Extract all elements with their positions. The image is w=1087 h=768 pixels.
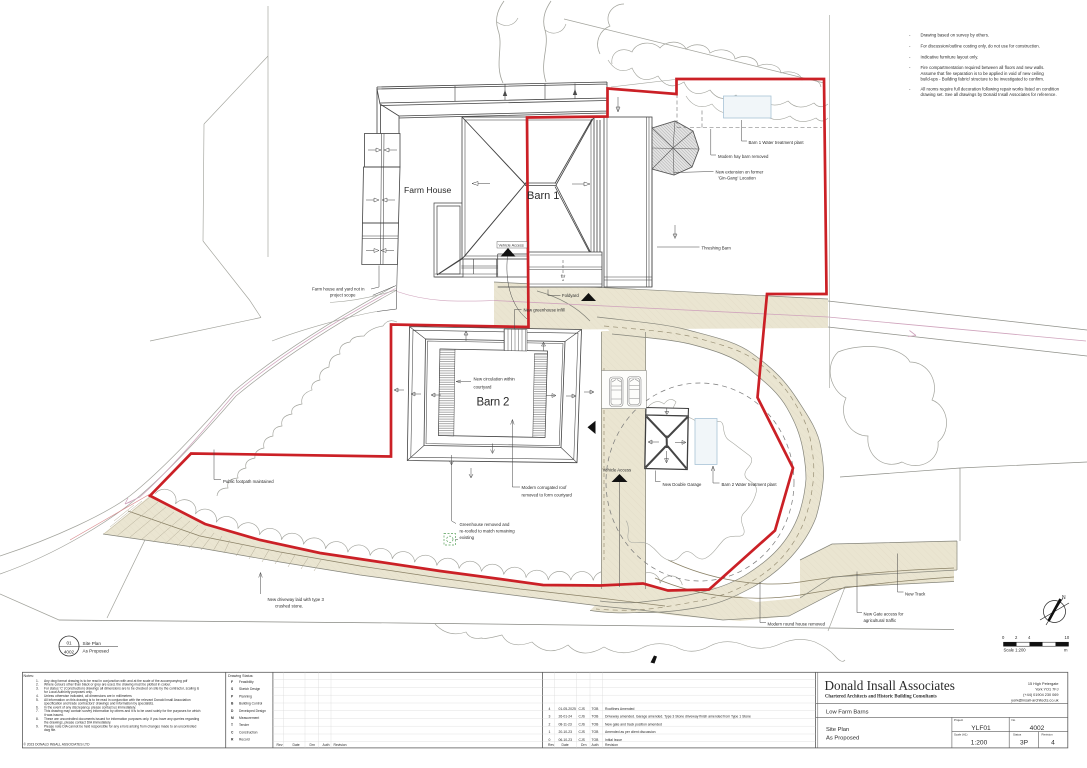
svg-text:Rev: Rev <box>277 743 283 747</box>
svg-text:existing: existing <box>460 535 475 540</box>
svg-text:Greenhouse removed and: Greenhouse removed and <box>460 522 511 527</box>
svg-text:1: 1 <box>549 730 551 734</box>
svg-text:3.: 3. <box>36 686 39 690</box>
svg-text:Fire compartmentation required: Fire compartmentation required between a… <box>921 65 1045 70</box>
svg-text:15 High Petergate: 15 High Petergate <box>1028 682 1059 686</box>
svg-text:Project: Project <box>954 718 963 722</box>
svg-text:Scale (A1): Scale (A1) <box>954 732 968 736</box>
svg-text:Amended as per client discussi: Amended as per client discussion <box>605 730 656 734</box>
svg-text:Date: Date <box>562 743 569 747</box>
svg-text:Drn: Drn <box>581 743 587 747</box>
svg-text:Status: Status <box>1013 732 1022 736</box>
svg-text:As Proposed: As Proposed <box>826 736 859 742</box>
svg-text:TOB: TOB <box>592 707 600 711</box>
svg-text:Barn 1: Barn 1 <box>527 190 559 202</box>
svg-text:8.: 8. <box>36 717 39 721</box>
svg-text:CJS: CJS <box>579 715 586 719</box>
svg-text:Foldyard: Foldyard <box>562 293 579 298</box>
svg-text:YLF01: YLF01 <box>971 725 991 732</box>
svg-text:For discussion/outline costing: For discussion/outline costing only, do … <box>921 44 1040 49</box>
svg-text:4: 4 <box>1051 740 1055 747</box>
svg-text:Donald Insall Associates: Donald Insall Associates <box>825 678 955 693</box>
svg-text:01: 01 <box>66 641 72 646</box>
svg-text:Feasibility: Feasibility <box>239 680 254 684</box>
svg-text:This drawing may contain surve: This drawing may contain survey informat… <box>44 709 201 713</box>
svg-text:CJS: CJS <box>579 730 586 734</box>
svg-text:Modern hay barn removed: Modern hay barn removed <box>718 154 769 159</box>
svg-text:F: F <box>231 680 233 684</box>
svg-text:2: 2 <box>549 722 551 726</box>
svg-text:removed to form courtyard: removed to form courtyard <box>522 493 573 498</box>
svg-text:courtyard: courtyard <box>474 385 493 390</box>
svg-text:New Double Garage: New Double Garage <box>663 482 703 487</box>
svg-text:Driveway amended. Garage amend: Driveway amended. Garage amended. Type 3… <box>605 715 751 719</box>
svg-text:Please note DIA cannot be held: Please note DIA cannot be held responsib… <box>44 724 196 728</box>
svg-text:Drawing Status:: Drawing Status: <box>228 674 253 678</box>
svg-text:0: 0 <box>549 738 551 742</box>
svg-text:dwg file.: dwg file. <box>44 728 56 732</box>
svg-text:06-10-23: 06-10-23 <box>559 738 573 742</box>
svg-text:T: T <box>231 723 233 727</box>
svg-text:Vehicle Access: Vehicle Access <box>499 244 524 248</box>
svg-text:10: 10 <box>1065 635 1070 640</box>
svg-text:08-11-23: 08-11-23 <box>559 722 572 726</box>
svg-text:Drn: Drn <box>310 743 316 747</box>
svg-text:Assume that fire separation is: Assume that fire separation is to be app… <box>921 71 1045 76</box>
svg-text:Modern corrugated roof: Modern corrugated roof <box>522 485 568 490</box>
svg-text:01-05-2025: 01-05-2025 <box>559 707 576 711</box>
svg-text:Record: Record <box>239 738 250 742</box>
svg-text:7.: 7. <box>36 709 39 713</box>
svg-text:'Gin-Gang' Location: 'Gin-Gang' Location <box>718 176 756 181</box>
svg-text:Tender: Tender <box>239 723 250 727</box>
svg-text:Barn 1 Water treatment plant: Barn 1 Water treatment plant <box>749 140 805 145</box>
svg-text:re-roofed to match remaining: re-roofed to match remaining <box>460 529 516 534</box>
svg-text:Revision: Revision <box>334 743 347 747</box>
svg-text:3: 3 <box>549 715 551 719</box>
svg-text:20-10-23: 20-10-23 <box>559 730 573 734</box>
svg-text:TOB: TOB <box>592 722 600 726</box>
svg-text:New driveway laid with type 3: New driveway laid with type 3 <box>268 597 325 602</box>
svg-text:Revision: Revision <box>605 743 618 747</box>
svg-text:New circulation within: New circulation within <box>474 377 516 382</box>
svg-text:N: N <box>1062 595 1066 601</box>
svg-text:3P: 3P <box>1020 740 1029 747</box>
svg-text:Low Farm Barns: Low Farm Barns <box>826 710 869 716</box>
svg-text:CJS: CJS <box>579 722 586 726</box>
svg-text:Indicative furniture layout on: Indicative furniture layout only. <box>921 55 979 60</box>
svg-text:Measurement: Measurement <box>239 716 259 720</box>
svg-text:Public footpath maintained: Public footpath maintained <box>223 479 274 484</box>
svg-text:CJS: CJS <box>579 707 586 711</box>
svg-text:project scope: project scope <box>330 293 356 298</box>
svg-text:Developed Design: Developed Design <box>239 709 266 713</box>
svg-text:Drawing based on survey by oth: Drawing based on survey by others. <box>921 33 990 38</box>
svg-text:All rooms require full decorat: All rooms require full decoration follow… <box>921 87 1060 92</box>
svg-text:Notes:: Notes: <box>24 674 34 678</box>
svg-text:Revision: Revision <box>1042 732 1053 736</box>
svg-text:Rev: Rev <box>548 743 554 747</box>
svg-text:New Gate access for: New Gate access for <box>864 612 904 617</box>
svg-text:Threshing Barn: Threshing Barn <box>702 246 732 251</box>
svg-text:york@insall-architects.co.uk: york@insall-architects.co.uk <box>1011 699 1058 703</box>
svg-text:Planning: Planning <box>239 694 252 698</box>
svg-text:(+44) 01904 230 069: (+44) 01904 230 069 <box>1023 693 1058 697</box>
svg-text:No: No <box>1012 718 1016 722</box>
svg-text:build-ups - Building fabric/ s: build-ups - Building fabric/ structure t… <box>921 76 1044 81</box>
svg-text:Building Control: Building Control <box>239 702 263 706</box>
svg-text:9.: 9. <box>36 724 39 728</box>
svg-text:Auth: Auth <box>323 743 330 747</box>
svg-text:New Track: New Track <box>905 592 926 597</box>
svg-text:York YO1 7FJ: York YO1 7FJ <box>1035 688 1059 692</box>
svg-text:drawing set. See all drawings: drawing set. See all drawings by Donald … <box>921 92 1057 97</box>
svg-text:New extension on former: New extension on former <box>716 170 764 175</box>
svg-text:Chartered Architects and Histo: Chartered Architects and Historic Buildi… <box>825 695 937 700</box>
svg-text:Initial Issue: Initial Issue <box>605 738 622 742</box>
svg-text:TOB: TOB <box>592 730 600 734</box>
svg-text:CJS: CJS <box>579 738 586 742</box>
svg-text:4002: 4002 <box>1030 725 1045 732</box>
svg-text:26-01-24: 26-01-24 <box>559 715 573 719</box>
svg-text:Modern round house removed: Modern round house removed <box>768 622 826 627</box>
svg-text:Vehicle Access: Vehicle Access <box>603 468 632 473</box>
svg-text:4002: 4002 <box>64 650 75 655</box>
svg-text:Rooflines Amended: Rooflines Amended <box>605 707 635 711</box>
svg-text:1:200: 1:200 <box>971 740 988 747</box>
svg-text:Barn 2: Barn 2 <box>477 397 510 409</box>
svg-text:Scale 1:200: Scale 1:200 <box>1004 648 1027 653</box>
svg-text:As Proposed: As Proposed <box>83 649 110 654</box>
svg-text:Construction: Construction <box>239 730 258 734</box>
svg-text:Site Plan: Site Plan <box>826 727 849 733</box>
svg-text:5.: 5. <box>36 698 39 702</box>
svg-text:Auth: Auth <box>592 743 599 747</box>
svg-text:New greenhouse infill: New greenhouse infill <box>524 308 565 313</box>
svg-text:Farm House: Farm House <box>404 185 451 195</box>
svg-text:TOB: TOB <box>592 715 600 719</box>
svg-text:Barn 2 Water treatment plant: Barn 2 Water treatment plant <box>722 482 778 487</box>
svg-text:M: M <box>231 716 234 720</box>
svg-text:TOB: TOB <box>592 738 600 742</box>
svg-text:agricultural traffic: agricultural traffic <box>864 618 897 623</box>
svg-text:New gate and track position am: New gate and track position amended <box>605 722 662 726</box>
svg-text:Site Plan: Site Plan <box>83 641 102 646</box>
svg-text:Farm house and yard not in: Farm house and yard not in <box>312 287 365 292</box>
svg-text:Date: Date <box>293 743 300 747</box>
svg-text:m: m <box>1064 648 1068 653</box>
svg-text:4: 4 <box>549 707 551 711</box>
svg-text:Sketch Design: Sketch Design <box>239 687 260 691</box>
svg-text:© 2023 DONALD INSALL ASSOCIATE: © 2023 DONALD INSALL ASSOCIATES LTD <box>24 742 91 746</box>
svg-text:crushed stone.: crushed stone. <box>275 604 303 609</box>
